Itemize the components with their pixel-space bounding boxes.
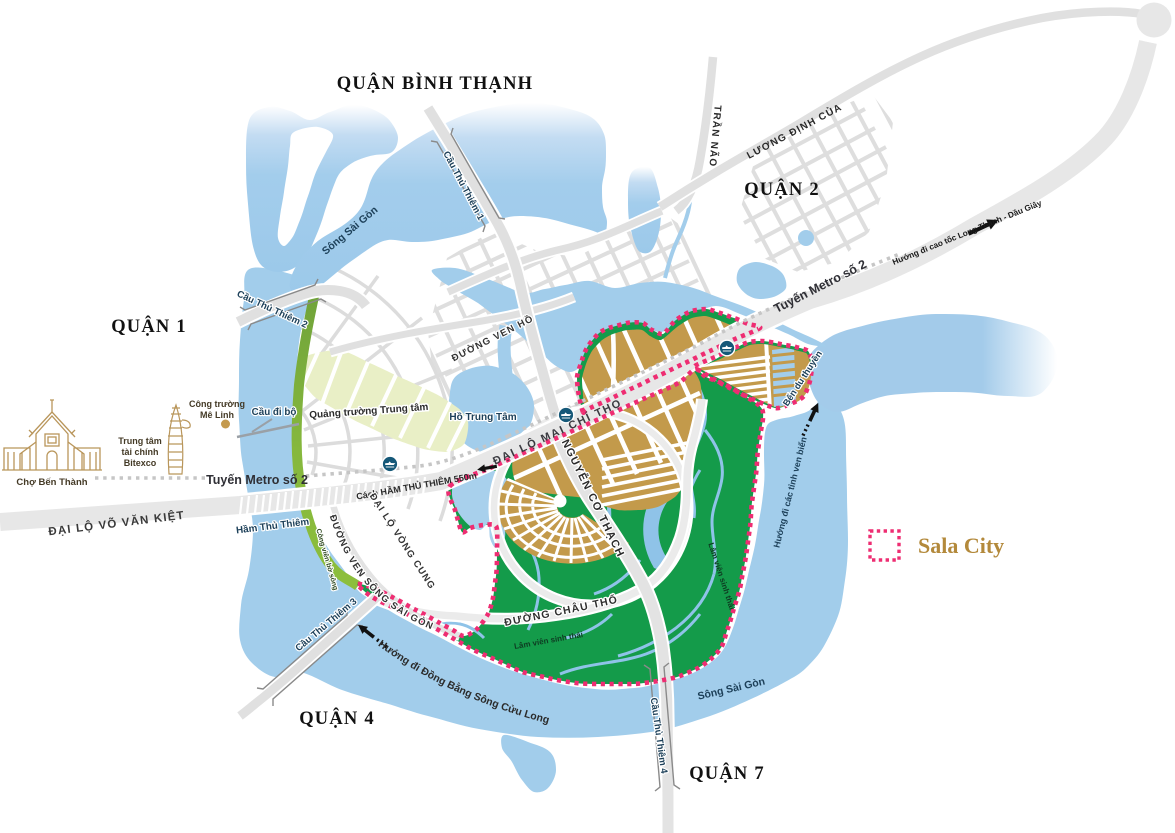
svg-text:QUẬN BÌNH THẠNH: QUẬN BÌNH THẠNH <box>337 72 534 94</box>
svg-text:Hồ Trung Tâm: Hồ Trung Tâm <box>449 411 516 423</box>
svg-text:QUẬN 1: QUẬN 1 <box>111 315 187 337</box>
svg-text:tài chính: tài chính <box>121 447 158 457</box>
svg-text:Bitexco: Bitexco <box>124 458 157 468</box>
svg-text:Sala City: Sala City <box>918 533 1004 558</box>
svg-text:QUẬN 7: QUẬN 7 <box>689 762 765 784</box>
svg-text:QUẬN 4: QUẬN 4 <box>299 707 375 729</box>
svg-text:Cầu đi bộ: Cầu đi bộ <box>252 407 297 418</box>
svg-text:Mê Linh: Mê Linh <box>200 410 234 420</box>
svg-text:Công trường: Công trường <box>189 399 245 409</box>
svg-text:Chợ Bến Thành: Chợ Bến Thành <box>16 477 87 488</box>
svg-text:Trung tâm: Trung tâm <box>118 436 162 446</box>
svg-text:QUẬN 2: QUẬN 2 <box>744 178 820 200</box>
svg-text:Tuyến Metro số 2: Tuyến Metro số 2 <box>206 473 308 487</box>
